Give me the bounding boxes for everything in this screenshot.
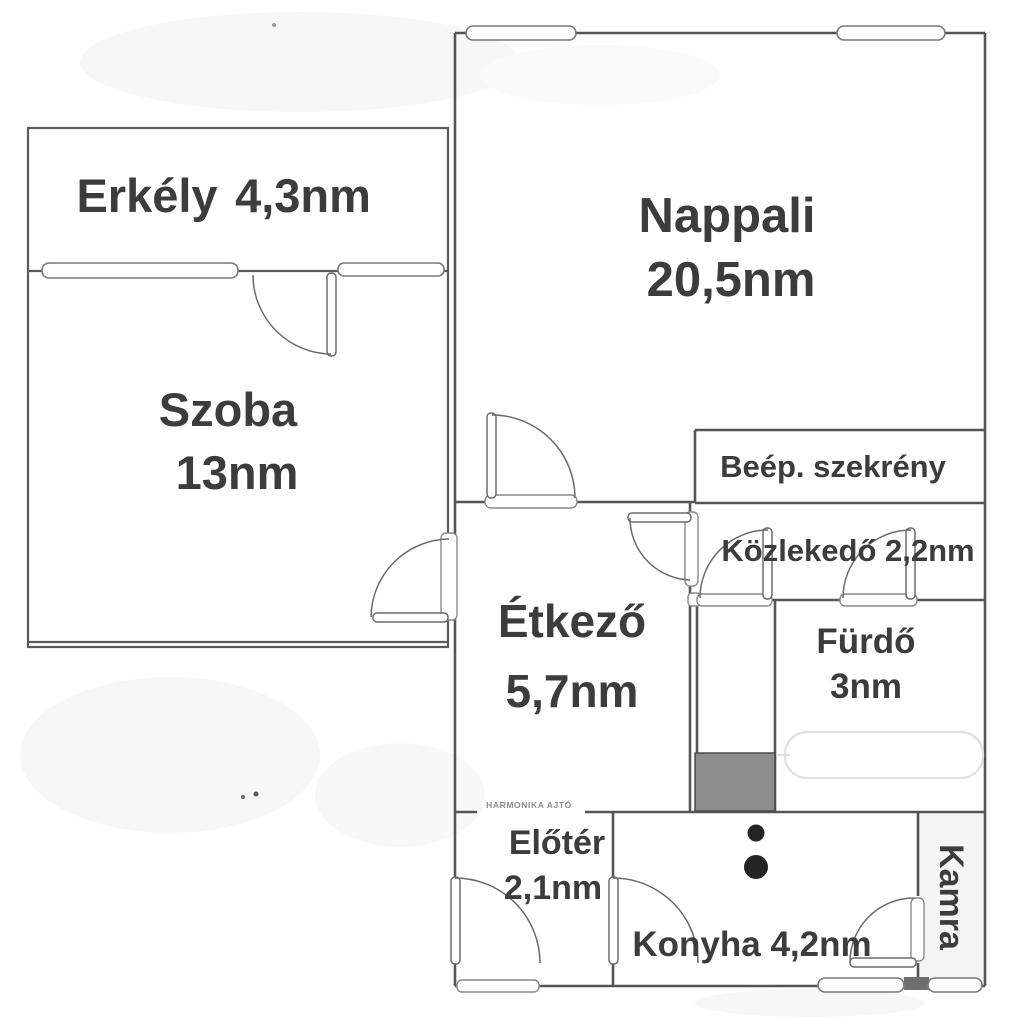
label-szoba-area: 13nm: [176, 446, 299, 499]
label-szoba-name: Szoba: [159, 383, 298, 436]
window-nappali-1: [466, 26, 576, 40]
label-folding-door: HARMONIKA AJTÓ: [486, 799, 572, 810]
wall-segment: [904, 977, 929, 990]
label-konyha: Konyha 4,2nm: [632, 925, 871, 964]
label-eloter-name: Előtér: [509, 824, 605, 862]
door-nappali-etkezo: [487, 413, 575, 498]
speck: [254, 792, 259, 797]
floor-plan-drawing: Erkély 4,3nm Szoba 13nm Nappali 20,5nm B…: [0, 0, 1031, 1024]
window-balcony: [42, 263, 238, 278]
window-kamra: [928, 978, 982, 992]
label-kamra: Kamra: [932, 844, 970, 951]
label-nappali-name: Nappali: [639, 189, 816, 243]
window-nappali-2: [837, 26, 945, 40]
stove-dots: [744, 825, 768, 880]
window-balcony-2: [338, 263, 444, 276]
label-eloter-area: 2,1nm: [504, 869, 602, 907]
speck: [241, 795, 245, 799]
label-erkely-name: Erkély: [76, 169, 217, 222]
floor-plan-page: Erkély 4,3nm Szoba 13nm Nappali 20,5nm B…: [0, 0, 1031, 1024]
door-etkezo-kozlekedo: [628, 513, 691, 580]
label-etkezo-area: 5,7nm: [506, 665, 639, 717]
label-nappali-area: 20,5nm: [647, 253, 816, 307]
duct-block: [695, 753, 775, 811]
label-kozlekedo: Közlekedő 2,2nm: [721, 533, 974, 568]
label-furdo-area: 3nm: [830, 667, 902, 706]
label-beep-szekreny: Beép. szekrény: [720, 449, 946, 484]
bathtub: [785, 732, 983, 778]
label-erkely-area: 4,3nm: [235, 169, 371, 222]
window-konyha: [818, 978, 904, 992]
speck: [272, 23, 276, 27]
label-etkezo-name: Étkező: [498, 595, 646, 647]
label-furdo-name: Fürdő: [816, 622, 915, 661]
door-openings: [441, 495, 924, 992]
